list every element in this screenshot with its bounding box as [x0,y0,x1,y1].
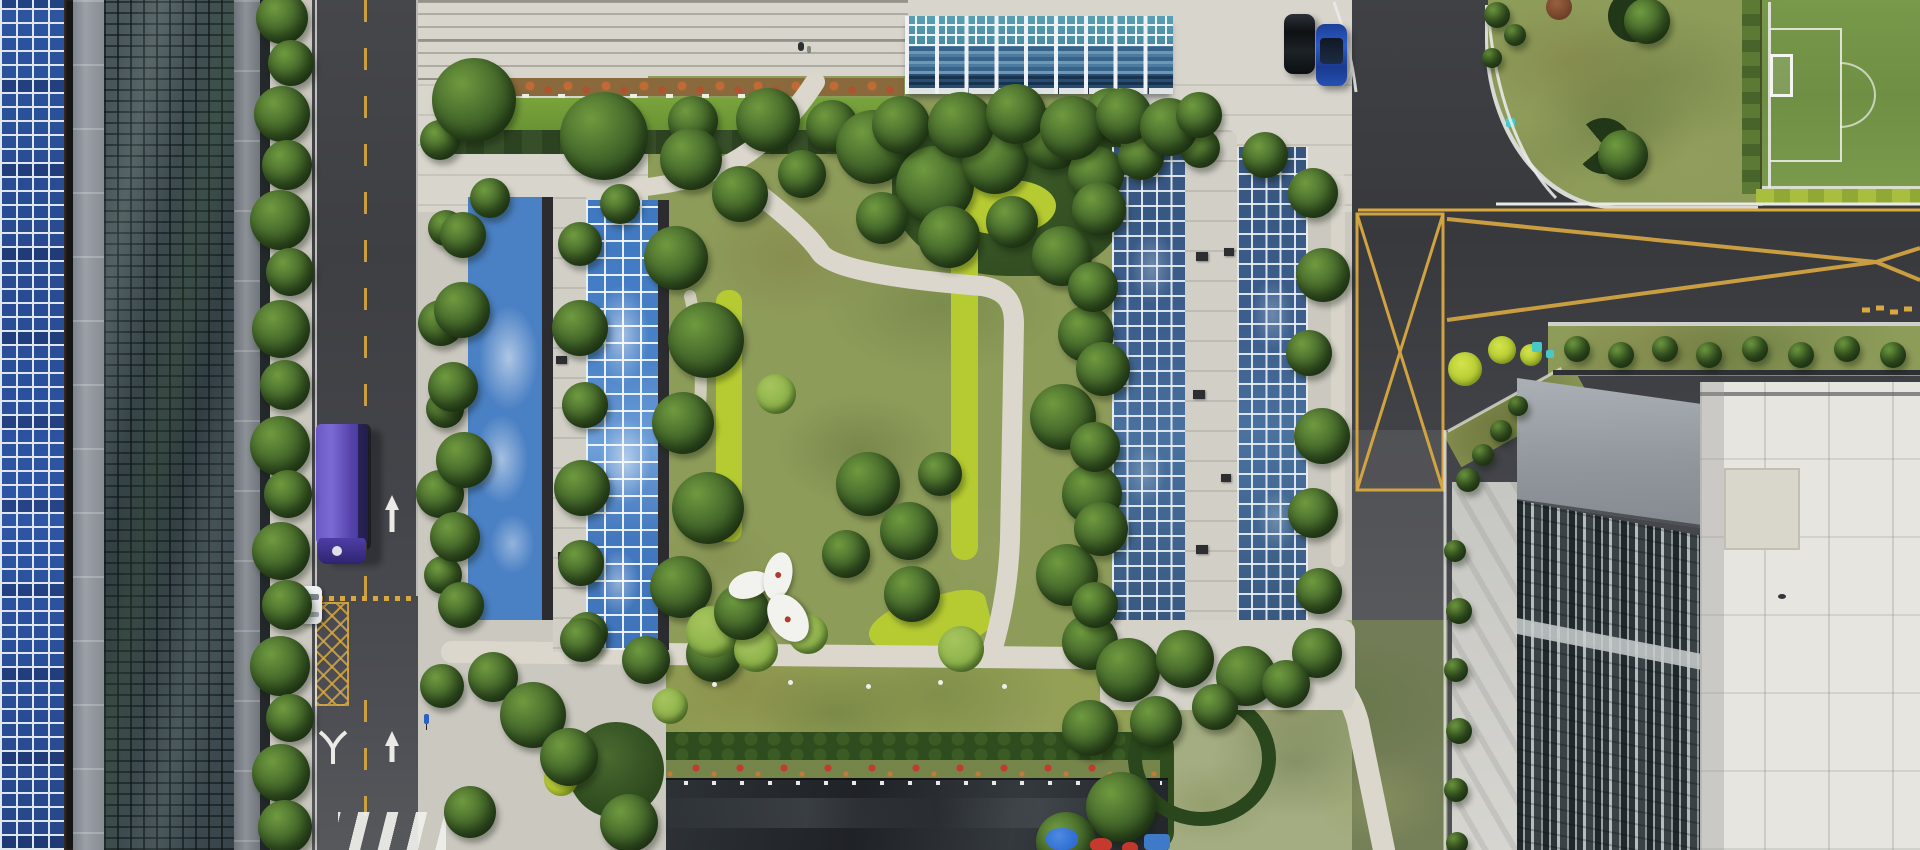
sprinkler-dot [866,684,871,689]
roadside-bush [1446,718,1472,744]
tree [266,694,314,742]
tree [1096,638,1160,702]
aerial-campus-photo [0,0,1920,850]
sprinkler-dot [788,680,793,685]
blue-tarp [1144,834,1170,850]
tree [430,512,480,562]
tree [1262,660,1310,708]
delivery-truck [316,424,372,566]
verge-bush [1472,444,1494,466]
tree [420,664,464,708]
verge-bush [1508,396,1528,416]
roadside-bush [1446,832,1468,850]
shrub [918,452,962,496]
red-canopy-spot [1122,842,1138,850]
sculpture-red-mark [775,571,782,578]
sprinkler-dot [712,682,717,687]
roadside-bush [1444,658,1468,682]
tree [262,140,312,190]
tree [428,362,478,412]
parked-blue-car [1316,24,1347,86]
tree [1072,582,1118,628]
roadside-bush [1446,598,1472,624]
tree [1040,96,1104,160]
verge-bush [1490,420,1512,442]
bush [756,374,796,414]
tree [250,190,310,250]
cyan-utility-box [1546,350,1554,358]
tree [736,88,800,152]
tree [1130,696,1182,748]
tree [1192,684,1238,730]
tree [470,178,510,218]
lime-bush [1448,352,1482,386]
tree [540,728,598,786]
tree [436,432,492,488]
truck-cab-logo [332,546,342,556]
tree [1076,342,1130,396]
tree [1072,182,1126,236]
park-bush [1484,2,1510,28]
tree [434,282,490,338]
tree [1068,262,1118,312]
tree [268,40,314,86]
truck-cab [318,538,366,564]
tree [712,166,768,222]
tree [918,206,980,268]
tree [444,786,496,838]
tree [1294,408,1350,464]
tree [644,226,708,290]
tree [252,300,310,358]
verge-bush [1880,342,1906,368]
park-bush [1504,24,1526,46]
lime-bush [1488,336,1516,364]
verge-bush [1742,336,1768,362]
verge-bush [1652,336,1678,362]
sprinkler-dot [938,680,943,685]
tree [254,86,310,142]
tree [660,128,722,190]
bush [652,688,688,724]
tree [986,84,1046,144]
tree [1288,488,1338,538]
verge-bush [1834,336,1860,362]
tree [250,636,310,696]
tree [672,472,744,544]
tree [1070,422,1120,472]
roadside-bush [1444,778,1468,802]
tree [440,212,486,258]
verge-bush [1564,336,1590,362]
car-windows [1320,38,1343,64]
sculpture-red-mark [784,615,792,623]
blue-glass-shelter [905,16,1173,94]
tree [986,196,1038,248]
cyclist [424,714,429,724]
bush [938,626,984,672]
tree [252,522,310,580]
tree [1286,330,1332,376]
blue-canopy-spot [1046,828,1078,850]
verge-bush [1788,342,1814,368]
tree [558,540,604,586]
tree [560,618,604,662]
truck-trailer-edge [358,424,371,550]
tree [600,184,640,224]
tree [258,800,312,850]
tree [1296,248,1350,302]
cyan-utility-box [1532,342,1542,352]
tree [928,92,994,158]
tree [1288,168,1338,218]
tree [560,92,648,180]
tree [1086,772,1156,842]
red-canopy-spot [1090,838,1112,850]
shrub [836,452,900,516]
tree [778,150,826,198]
tree [872,96,930,154]
tree [1062,700,1118,756]
tree [266,248,314,296]
tree [668,302,744,378]
verge-bush [1608,342,1634,368]
parked-black-car [1284,14,1315,74]
verge-bush [1696,342,1722,368]
tree [264,470,312,518]
tree [558,222,602,266]
tree [432,58,516,142]
shrub [884,566,940,622]
tree [1074,502,1128,556]
tree [438,582,484,628]
tree [554,460,610,516]
shrub [822,530,870,578]
tree [252,744,310,802]
shrub [880,502,938,560]
tree [562,382,608,428]
tree [262,580,312,630]
tree [260,360,310,410]
shelter-ribs [905,16,1173,94]
verge-bush [1456,468,1480,492]
tree [652,392,714,454]
pedestrian [798,42,804,51]
sprinkler-dot [1002,684,1007,689]
roadside-bush [1444,540,1466,562]
tree [250,416,310,476]
tree [622,636,670,684]
tree [1156,630,1214,688]
tree [1242,132,1288,178]
tree [1176,92,1222,138]
tree [552,300,608,356]
tree [856,192,908,244]
park-bush [1482,48,1502,68]
tree [600,794,658,850]
tree [1296,568,1342,614]
